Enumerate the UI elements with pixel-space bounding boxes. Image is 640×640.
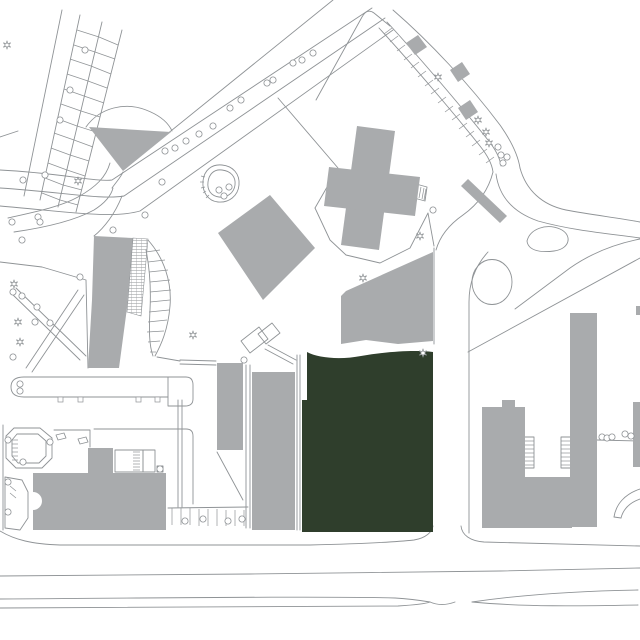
detail-line bbox=[67, 74, 88, 81]
detail-line bbox=[431, 88, 439, 94]
tree-circle bbox=[609, 434, 615, 440]
tree-circle bbox=[110, 227, 116, 233]
tree-circle bbox=[241, 357, 247, 363]
path-connector bbox=[157, 357, 180, 361]
tree-circle bbox=[5, 437, 11, 443]
detail-line bbox=[390, 36, 398, 42]
detail-line bbox=[61, 104, 81, 111]
post-square bbox=[136, 397, 141, 402]
detail-line bbox=[54, 133, 74, 140]
detail-line bbox=[422, 188, 424, 199]
tree-circle bbox=[196, 131, 202, 137]
tree-circle bbox=[210, 123, 216, 129]
winding-path-2 bbox=[14, 188, 113, 232]
detail-line bbox=[466, 131, 474, 137]
tree-circle bbox=[42, 172, 48, 178]
ramp-inner-edge bbox=[146, 250, 153, 356]
tree-star-icon bbox=[16, 338, 23, 346]
detail-line bbox=[67, 170, 85, 176]
median-west-bottom bbox=[0, 602, 430, 608]
tree-circle bbox=[172, 145, 178, 151]
south-road-centerline bbox=[0, 568, 640, 576]
tree-circle bbox=[183, 138, 189, 144]
octagon-link bbox=[54, 430, 90, 447]
horseshoe-inner bbox=[208, 170, 235, 197]
triangle-canopy-arc bbox=[86, 106, 172, 131]
median-west-top bbox=[0, 597, 430, 602]
detail-line bbox=[70, 155, 89, 161]
narrow-building-b bbox=[252, 372, 295, 530]
detail-line bbox=[95, 52, 115, 59]
detail-line bbox=[149, 270, 168, 272]
tree-circle bbox=[142, 212, 148, 218]
detail-line bbox=[45, 178, 63, 185]
platform-left-cap bbox=[11, 377, 24, 397]
detail-line bbox=[42, 193, 60, 200]
narrow-building-a bbox=[217, 363, 243, 450]
kiosk-outline-1 bbox=[56, 433, 66, 440]
post-square bbox=[155, 397, 160, 402]
tree-circle bbox=[67, 87, 73, 93]
tree-circle bbox=[162, 148, 168, 154]
site-outer-arc bbox=[393, 10, 520, 168]
tree-circle bbox=[157, 466, 163, 472]
tree-circle bbox=[238, 97, 244, 103]
east-edge-sliver-small bbox=[636, 306, 640, 315]
detail-line bbox=[149, 310, 169, 312]
octagon-inner bbox=[12, 434, 46, 463]
south-road-edge-east bbox=[461, 526, 640, 546]
tilted-plot-2 bbox=[258, 323, 280, 344]
stair-box-2 bbox=[143, 450, 155, 472]
site-plan bbox=[0, 0, 640, 640]
tree-circle bbox=[264, 80, 270, 86]
detail-line bbox=[150, 280, 170, 282]
path-below-a bbox=[217, 452, 243, 500]
tree-circle bbox=[182, 518, 188, 524]
tree-circle bbox=[19, 293, 25, 299]
tree-circle bbox=[20, 459, 26, 465]
tree-circle bbox=[310, 50, 316, 56]
median-connector bbox=[430, 602, 455, 605]
tree-circle bbox=[239, 516, 245, 522]
tree-circle bbox=[5, 479, 11, 485]
tree-circle bbox=[159, 179, 165, 185]
tree-circle bbox=[82, 47, 88, 53]
detail-line bbox=[91, 66, 111, 74]
detail-line bbox=[10, 493, 16, 498]
tree-star-icon bbox=[14, 318, 21, 326]
median-east-top bbox=[472, 590, 638, 602]
tilted-plot-1 bbox=[241, 327, 268, 353]
tree-circle bbox=[47, 439, 53, 445]
avenue-upper-edge bbox=[0, 8, 372, 180]
tree-circle bbox=[47, 320, 53, 326]
center-parallelogram-building bbox=[218, 195, 315, 300]
tree-circle bbox=[290, 60, 296, 66]
tree-circle bbox=[10, 289, 16, 295]
tree-circle bbox=[200, 516, 206, 522]
lawn-path-x2a bbox=[26, 290, 78, 368]
detail-line bbox=[452, 114, 460, 120]
parking-block-3 bbox=[458, 100, 478, 120]
east-diagonal-road bbox=[468, 258, 640, 352]
tree-circle bbox=[225, 518, 231, 524]
tree-circle bbox=[32, 319, 38, 325]
market-hall-building bbox=[33, 448, 166, 530]
northeast-parcel-corner bbox=[316, 11, 390, 100]
detail-line bbox=[10, 486, 16, 491]
tree-circle bbox=[17, 381, 23, 387]
detail-line bbox=[201, 187, 205, 188]
detail-line bbox=[397, 45, 405, 51]
tree-circle bbox=[20, 177, 26, 183]
squares-layer bbox=[58, 397, 160, 402]
west-slab-building bbox=[88, 236, 133, 368]
north-of-highlight-building bbox=[341, 252, 433, 344]
tree-star-icon bbox=[485, 139, 492, 147]
detail-line bbox=[74, 140, 93, 147]
detail-line bbox=[48, 163, 67, 170]
detail-line bbox=[150, 290, 171, 292]
tree-circle bbox=[34, 304, 40, 310]
detail-line bbox=[146, 250, 160, 252]
parking-row-top bbox=[168, 507, 248, 508]
detail-line bbox=[150, 300, 170, 302]
tree-circle bbox=[622, 431, 628, 437]
tree-circle bbox=[299, 57, 305, 63]
ramp-curve-br-1 bbox=[614, 489, 640, 517]
tree-circle bbox=[9, 219, 15, 225]
kiosk-outline-2 bbox=[78, 437, 88, 444]
tree-circle bbox=[226, 184, 232, 190]
tree-star-icon bbox=[10, 280, 17, 288]
tree-circle bbox=[504, 154, 510, 160]
detail-line bbox=[51, 148, 70, 155]
detail-line bbox=[148, 320, 167, 322]
detail-line bbox=[77, 30, 99, 37]
tree-circle bbox=[216, 187, 222, 193]
tree-circle bbox=[270, 77, 276, 83]
tree-circle bbox=[498, 152, 504, 158]
detail-line bbox=[419, 187, 421, 198]
tree-circle bbox=[628, 433, 634, 439]
tree-circle bbox=[10, 354, 16, 360]
detail-line bbox=[99, 37, 118, 45]
east-tower-slab bbox=[570, 313, 597, 527]
tree-star-icon bbox=[474, 116, 481, 124]
platform-right-box bbox=[168, 377, 193, 406]
tree-circle bbox=[500, 160, 506, 166]
path-pair-ha bbox=[180, 360, 216, 361]
tree-star-icon bbox=[189, 331, 196, 339]
tree-circle bbox=[57, 117, 63, 123]
detail-line bbox=[81, 111, 100, 117]
church-transept bbox=[324, 167, 420, 216]
tree-circle bbox=[495, 144, 501, 150]
detail-line bbox=[84, 96, 104, 103]
parcel-fan-outer bbox=[24, 10, 62, 196]
avenue-lower-edge bbox=[0, 18, 385, 197]
median-east-bottom bbox=[472, 602, 638, 606]
post-square bbox=[78, 397, 83, 402]
tree-star-icon bbox=[359, 274, 366, 282]
tree-circle bbox=[227, 105, 233, 111]
detail-line bbox=[438, 97, 446, 103]
ramp-teardrop bbox=[527, 227, 568, 252]
parcel-fan-edge-3 bbox=[76, 30, 122, 212]
ne-parking-band-mid bbox=[379, 28, 493, 172]
avenue-bend bbox=[112, 172, 123, 188]
parking-block-2 bbox=[450, 62, 470, 82]
southeast-l-building bbox=[482, 400, 572, 528]
highlighted-building[interactable] bbox=[302, 351, 433, 532]
tree-circle bbox=[5, 509, 11, 515]
tree-circle bbox=[19, 237, 25, 243]
tree-star-icon bbox=[3, 41, 10, 49]
path-pair-hb bbox=[180, 364, 216, 365]
tree-circle bbox=[77, 274, 83, 280]
road-curve-north bbox=[520, 168, 640, 222]
fan-bottom-join bbox=[94, 196, 122, 236]
tree-circle bbox=[221, 193, 227, 199]
ramp-curve-br-2 bbox=[621, 499, 640, 518]
ramp-outer-edge bbox=[148, 240, 170, 356]
tree-circle bbox=[430, 207, 436, 213]
detail-line bbox=[63, 185, 82, 190]
parking-block-long bbox=[461, 179, 507, 223]
detail-line bbox=[88, 81, 107, 88]
ne-parking-band-inner bbox=[387, 22, 501, 166]
site-plan-svg bbox=[0, 0, 640, 640]
tree-circle bbox=[37, 219, 43, 225]
tree-circle bbox=[17, 388, 23, 394]
post-square bbox=[58, 397, 63, 402]
topleft-mark bbox=[0, 131, 18, 137]
ramp-curve-br-3 bbox=[614, 517, 621, 518]
road-curve-south bbox=[496, 174, 640, 238]
detail-line bbox=[70, 59, 91, 66]
